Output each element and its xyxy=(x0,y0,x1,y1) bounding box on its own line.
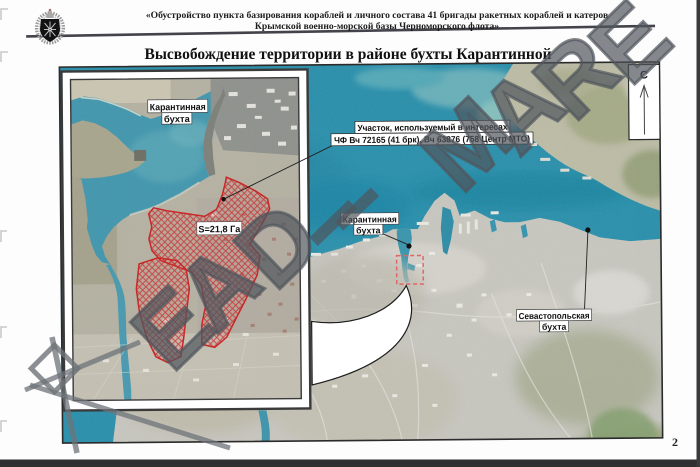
svg-text:«Обустройство пункта базирован: «Обустройство пункта базирования корабле… xyxy=(146,10,608,21)
svg-text:Высвобождение территории в рай: Высвобождение территории в районе бухты … xyxy=(144,46,551,63)
svg-text:бухта: бухта xyxy=(164,114,191,124)
svg-text:Севастопольская: Севастопольская xyxy=(519,310,590,321)
svg-text:2: 2 xyxy=(672,435,678,449)
svg-text:Крымской военно-морской базы Ч: Крымской военно-морской базы Черноморско… xyxy=(255,21,499,32)
svg-text:Карантинная: Карантинная xyxy=(150,102,206,112)
svg-text:бухта: бухта xyxy=(542,322,567,332)
svg-text:бухта: бухта xyxy=(356,225,381,235)
